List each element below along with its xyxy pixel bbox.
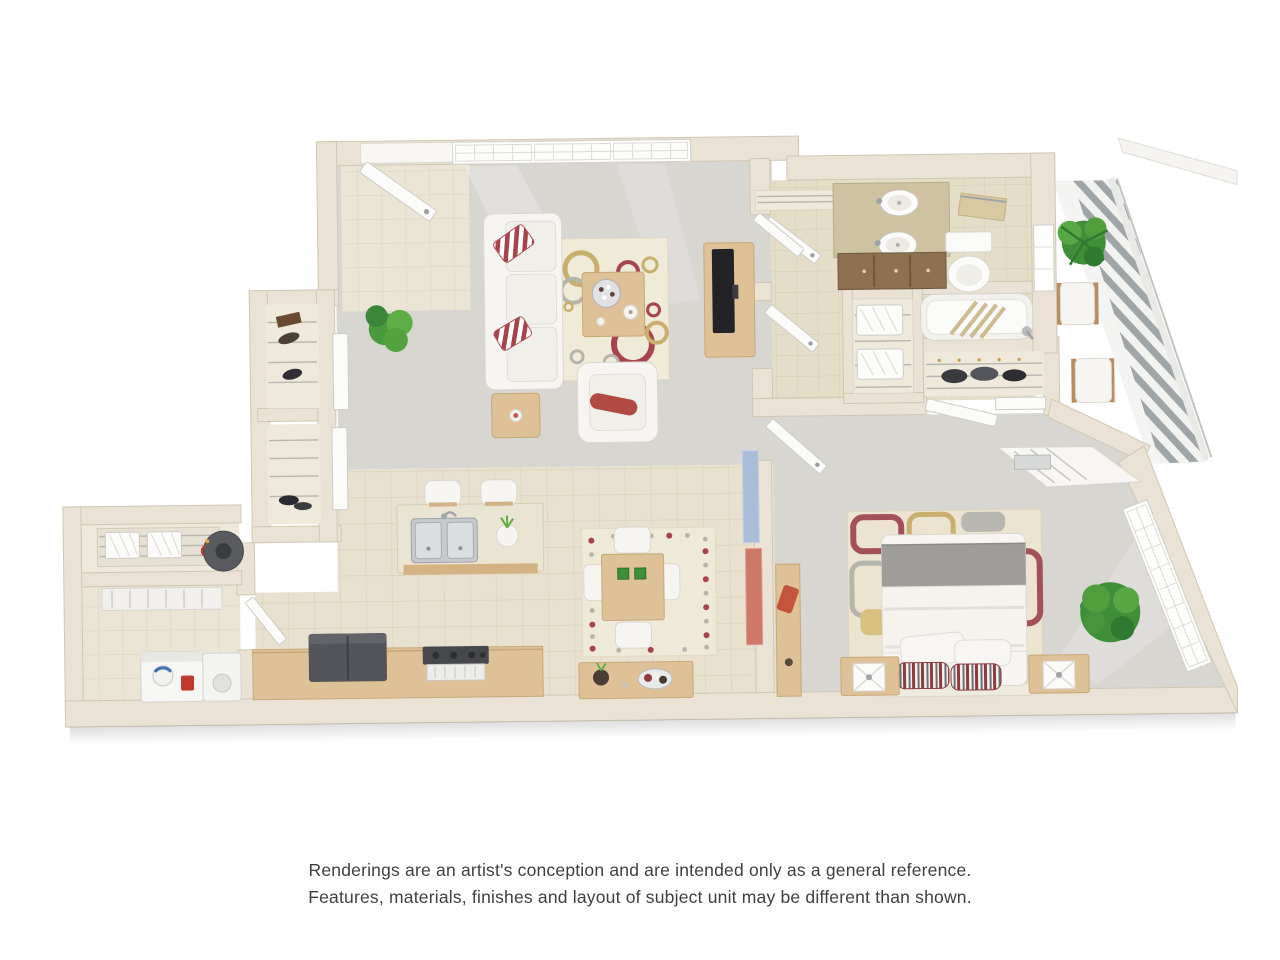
television	[712, 249, 735, 333]
double-sink	[411, 512, 478, 563]
ac-unit	[1014, 455, 1050, 469]
gray-throw	[881, 543, 1026, 587]
balcony-chair-1	[1056, 282, 1099, 325]
hall-closet-door-1	[333, 334, 349, 410]
bathroom-window	[1034, 225, 1055, 291]
roof-beam	[1118, 137, 1237, 186]
apartment-plan	[58, 131, 1243, 745]
bar-stool-2	[481, 480, 517, 506]
range-stove	[423, 646, 489, 681]
floor-plan-rendering	[0, 0, 1280, 960]
kitchen-island	[397, 503, 544, 575]
balcony-chair-2	[1071, 358, 1115, 403]
armchair	[577, 362, 658, 443]
entry-tile-floor	[341, 164, 471, 312]
wall-top-bathroom	[787, 153, 1055, 180]
wall-laundry-left	[63, 507, 83, 703]
disclaimer-line-1: Renderings are an artist's conception an…	[0, 857, 1280, 884]
side-table	[492, 393, 541, 438]
drying-rack	[102, 587, 222, 610]
bed-striped-pillow-1	[897, 662, 949, 689]
white-pillow-2	[955, 639, 1011, 666]
mini-planter-2	[635, 568, 646, 579]
bedroom-closet-door-2	[996, 397, 1046, 410]
floor-plan-page: Renderings are an artist's conception an…	[0, 0, 1280, 960]
bedroom-desk	[775, 564, 801, 696]
disclaimer-line-2: Features, materials, finishes and layout…	[0, 884, 1280, 911]
bed	[881, 533, 1027, 691]
wall-art-blue	[742, 451, 759, 543]
dining-table	[602, 554, 665, 621]
bar-stool-1	[425, 480, 461, 506]
disclaimer: Renderings are an artist's conception an…	[0, 857, 1280, 911]
console-table	[579, 661, 693, 698]
wall-left-living	[316, 142, 338, 306]
dryer	[203, 653, 242, 701]
sectional-sofa	[483, 213, 563, 390]
bed-striped-pillow-2	[951, 664, 1001, 691]
serving-tray	[592, 279, 620, 307]
island-cabinet-base	[404, 563, 538, 575]
kitchen-counter	[253, 646, 544, 700]
dining-chair-bottom	[615, 622, 651, 648]
balcony-palm-plant	[1057, 217, 1108, 267]
wall-laundry-divider	[82, 571, 242, 587]
tv-console	[704, 243, 755, 358]
coffee-table	[582, 272, 645, 337]
wall-laundry-top	[63, 505, 241, 525]
vanity	[833, 182, 950, 289]
living-room-windows	[452, 139, 690, 164]
vanity-cabinets	[838, 252, 946, 289]
washer	[141, 651, 204, 702]
flower-vase	[496, 524, 518, 546]
hall-closet-door-2	[332, 428, 348, 510]
hall-closet-1	[265, 304, 319, 409]
refrigerator	[308, 633, 387, 682]
hall-closet-2	[267, 424, 321, 525]
detergent-cup	[181, 675, 194, 690]
bedroom-reach-in-closet	[924, 351, 1045, 396]
mini-planter-1	[618, 568, 629, 579]
linen-closet	[852, 299, 913, 394]
nightstand-right	[1029, 655, 1089, 694]
dining-chair-top	[614, 527, 650, 553]
bathtub	[920, 293, 1033, 340]
wall-art-red	[745, 549, 762, 645]
entry-door-frame	[360, 142, 452, 163]
storage-closet	[97, 527, 244, 573]
nightstand-left	[841, 657, 899, 696]
